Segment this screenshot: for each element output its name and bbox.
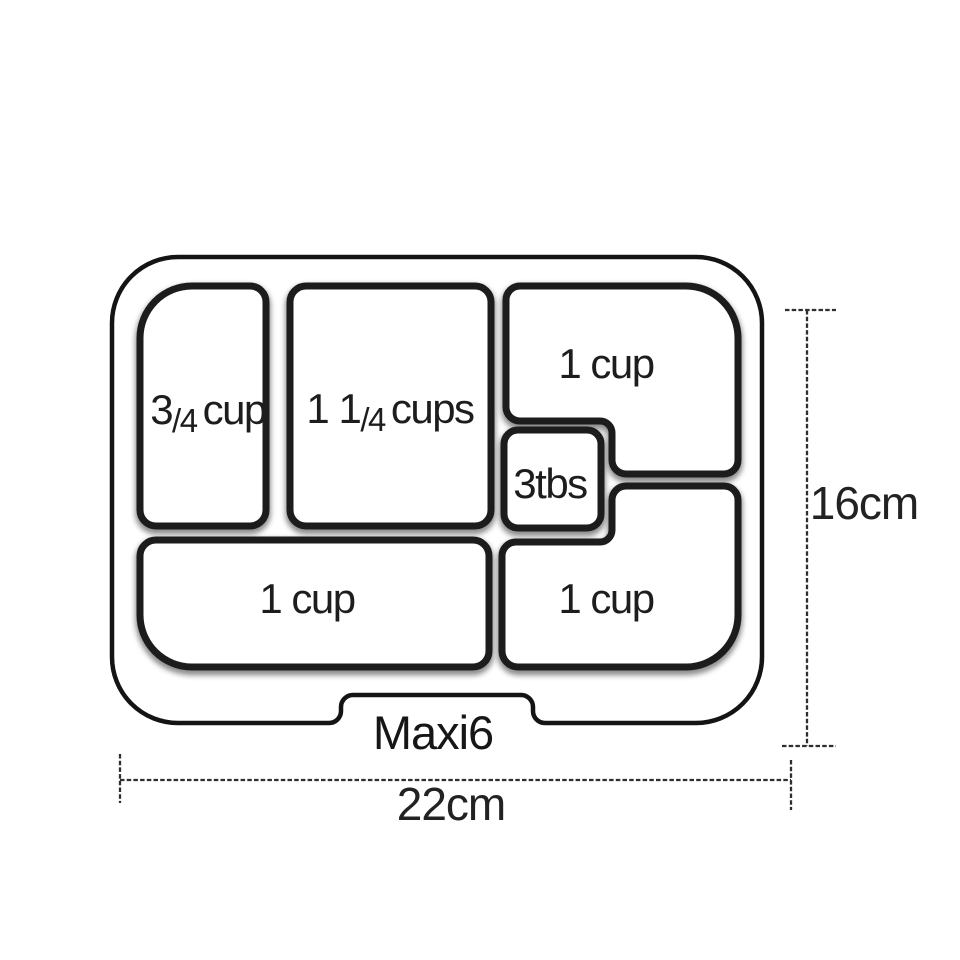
label-bottom-right-capacity: 1 cup [558,575,653,622]
width-dimension-label: 22cm [397,778,505,830]
label-top-left-whole: 3 [150,386,172,433]
label-top-left-fraction: /4 [172,402,198,439]
model-name-label: Maxi6 [373,706,493,759]
diagram-page: 3/4cup 1 1/4cups 1 cup 3tbs 1 cup 1 cup … [0,0,960,960]
height-dimension-label: 16cm [810,477,918,529]
label-top-left-unit: cup [203,386,266,433]
tray-capacity-diagram: 3/4cup 1 1/4cups 1 cup 3tbs 1 cup 1 cup … [0,0,960,960]
label-top-middle-whole: 1 1 [306,385,360,432]
label-top-right-capacity: 1 cup [558,340,653,387]
label-top-middle-fraction: /4 [360,401,386,438]
label-top-left-capacity: 3/4cup [150,386,266,439]
label-bottom-left-capacity: 1 cup [259,575,354,622]
label-top-middle-unit: cups [391,385,474,432]
width-dimension: 22cm [120,754,791,830]
label-top-middle-capacity: 1 1/4cups [306,385,474,438]
label-small-center-capacity: 3tbs [513,460,587,507]
height-dimension: 16cm [782,310,918,746]
